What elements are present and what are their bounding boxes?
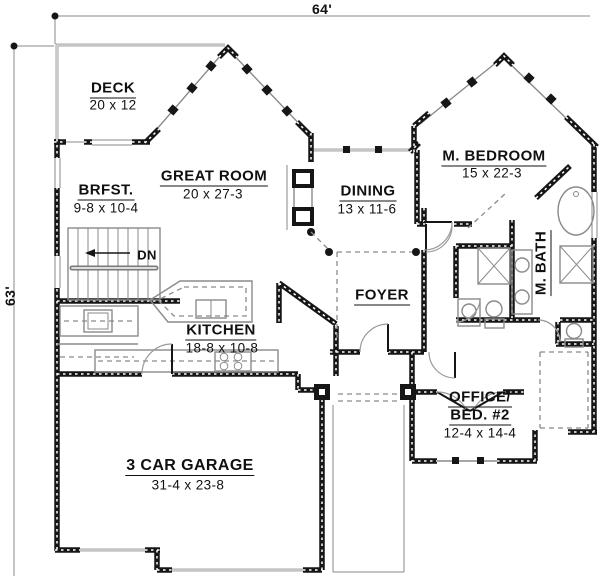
master-bedroom-bay-windows (420, 57, 569, 124)
toilet (486, 301, 502, 317)
room-label-great-room: GREAT ROOM (160, 168, 268, 185)
room-label-deck: DECK (90, 80, 136, 97)
sink (515, 290, 529, 304)
bathtub (558, 187, 594, 235)
room-size-garage: 31-4 x 23-8 (152, 478, 225, 493)
room-label-office-line1: OFFICE/ (448, 389, 512, 406)
room-size-deck: 20 x 12 (89, 98, 136, 113)
room-size-great-room: 20 x 27-3 (183, 187, 243, 202)
walls (54, 48, 597, 570)
room-label-office-line2: BED. #2 (449, 407, 511, 424)
room-size-kitchen: 18-8 x 10-8 (186, 341, 259, 356)
column (412, 248, 420, 256)
stairs (68, 228, 160, 300)
plan-height-dimension: 63' (2, 286, 18, 306)
master-bath (512, 187, 594, 347)
room-label-foyer: FOYER (354, 287, 410, 304)
column (325, 248, 333, 256)
sink (515, 258, 529, 272)
dining-window-wall (313, 146, 412, 153)
hall-bath (456, 248, 510, 328)
front-porch (314, 384, 416, 572)
plan-width-dimension: 64' (312, 1, 332, 17)
room-size-office: 12-4 x 14-4 (444, 426, 517, 441)
side-porch (540, 352, 588, 428)
stair-direction-label: DN (137, 248, 157, 263)
room-label-m-bedroom: M. BEDROOM (441, 148, 546, 165)
toilet (567, 324, 582, 339)
deck-slider-door (92, 138, 132, 147)
dimension-dot (52, 13, 59, 20)
great-room-bay-windows (150, 48, 307, 137)
floor-plan: 64' 63' DECK 20 x 12 BRFST. 9-8 x 10-4 G… (0, 0, 600, 581)
closet-dashed-line (468, 193, 506, 228)
room-size-dining: 13 x 11-6 (338, 202, 397, 217)
room-label-garage: 3 CAR GARAGE (125, 457, 254, 475)
room-label-dining: DINING (340, 183, 397, 200)
sink (462, 304, 476, 318)
room-label-m-bath: M. BATH (533, 230, 550, 296)
garage-doors (80, 550, 303, 570)
room-size-m-bedroom: 15 x 22-3 (462, 166, 522, 181)
room-label-brfst: BRFST. (78, 182, 135, 199)
room-label-kitchen: KITCHEN (185, 322, 256, 339)
dimension-dot (11, 43, 18, 50)
fireplace (287, 165, 315, 236)
deck-railing (57, 45, 225, 142)
room-size-brfst: 9-8 x 10-4 (74, 201, 139, 216)
